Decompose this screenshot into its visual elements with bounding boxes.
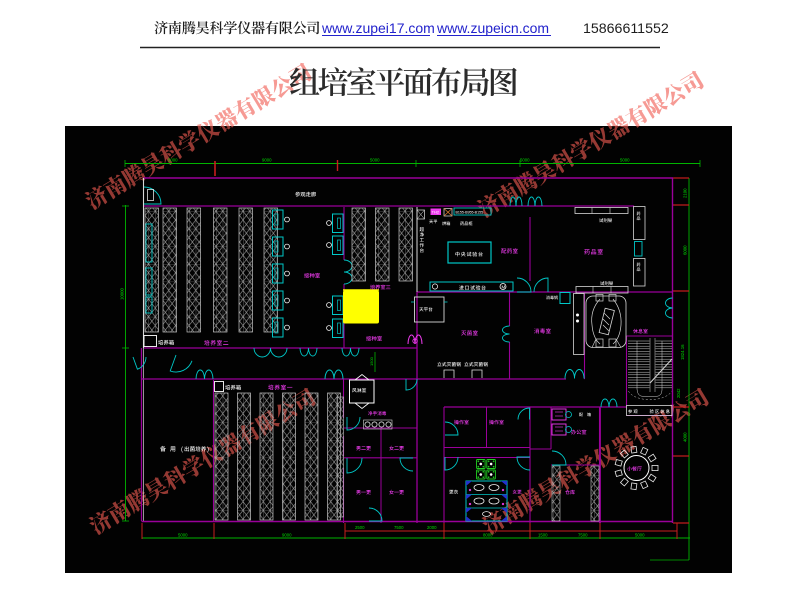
svg-text:5000: 5000 [370, 158, 380, 163]
svg-text:6000: 6000 [683, 245, 688, 255]
svg-text:10000: 10000 [120, 287, 125, 300]
svg-text:8000: 8000 [483, 533, 493, 538]
svg-text:7500: 7500 [394, 525, 404, 530]
svg-text:15866611552: 15866611552 [583, 21, 669, 37]
svg-text:1500: 1500 [369, 356, 374, 366]
svg-text:7500: 7500 [578, 533, 588, 538]
svg-text:B155-B955-B155: B155-B955-B155 [456, 211, 484, 215]
svg-text:2500: 2500 [355, 525, 365, 530]
svg-text:5000: 5000 [168, 158, 178, 163]
svg-text:5000: 5000 [178, 533, 188, 538]
svg-text:www.zupeicn.com: www.zupeicn.com [436, 20, 549, 36]
svg-text:): ) [207, 447, 209, 453]
svg-text:(: ( [181, 447, 183, 453]
svg-text:TH2: TH2 [432, 210, 440, 215]
svg-text:M: M [502, 285, 506, 290]
svg-text:2000: 2000 [427, 525, 437, 530]
svg-text:9000: 9000 [262, 158, 272, 163]
svg-text:2042: 2042 [676, 388, 681, 398]
svg-text:2100: 2100 [683, 188, 688, 198]
svg-text:5000: 5000 [635, 533, 645, 538]
svg-text:4000: 4000 [683, 432, 688, 442]
svg-text:1500: 1500 [538, 533, 548, 538]
svg-text:5000: 5000 [620, 158, 630, 163]
svg-text:9000: 9000 [282, 533, 292, 538]
svg-text:www.zupei17.com: www.zupei17.com [321, 20, 435, 36]
svg-text:5000: 5000 [520, 158, 530, 163]
svg-text:1824.16: 1824.16 [680, 344, 685, 360]
